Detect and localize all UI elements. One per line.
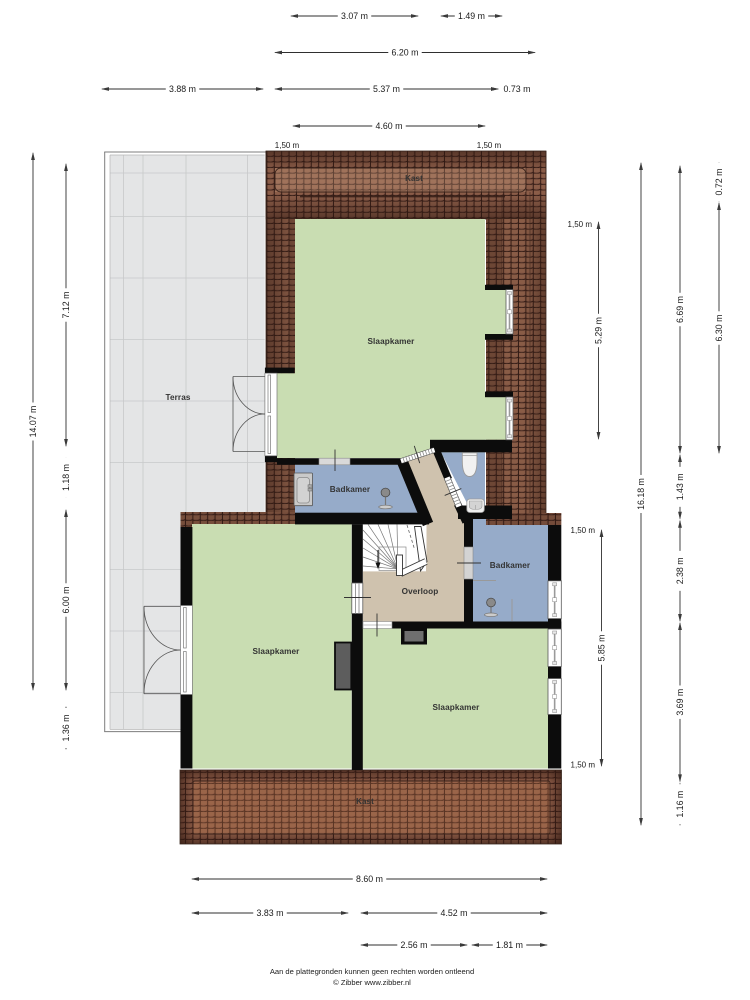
svg-text:Overloop: Overloop — [402, 587, 439, 596]
svg-text:3.88 m: 3.88 m — [169, 84, 196, 94]
svg-text:4.60 m: 4.60 m — [376, 121, 403, 131]
svg-text:6.20 m: 6.20 m — [392, 48, 419, 58]
svg-text:14.07 m: 14.07 m — [28, 406, 38, 438]
svg-text:4.52 m: 4.52 m — [441, 908, 468, 918]
svg-text:1,50 m: 1,50 m — [568, 220, 593, 229]
svg-text:Kast: Kast — [405, 174, 423, 183]
svg-text:Badkamer: Badkamer — [490, 561, 531, 570]
svg-text:1.36 m: 1.36 m — [61, 715, 71, 742]
svg-text:Aan de plattegronden kunnen ge: Aan de plattegronden kunnen geen rechten… — [270, 967, 474, 976]
svg-text:1.18 m: 1.18 m — [61, 464, 71, 491]
svg-text:Kast: Kast — [356, 797, 374, 806]
svg-text:6.30 m: 6.30 m — [714, 315, 724, 342]
svg-text:1,50 m: 1,50 m — [571, 761, 596, 770]
svg-text:Terras: Terras — [165, 393, 190, 402]
svg-text:1.49 m: 1.49 m — [458, 11, 485, 21]
svg-text:© Zibber www.zibber.nl: © Zibber www.zibber.nl — [333, 978, 411, 987]
svg-text:16.18 m: 16.18 m — [636, 478, 646, 510]
svg-text:3.69 m: 3.69 m — [675, 689, 685, 716]
svg-text:8.60 m: 8.60 m — [356, 874, 383, 884]
svg-text:1,50 m: 1,50 m — [275, 141, 300, 150]
svg-text:1.81 m: 1.81 m — [496, 940, 523, 950]
svg-text:1,50 m: 1,50 m — [571, 526, 596, 535]
svg-text:6.00 m: 6.00 m — [61, 587, 71, 614]
svg-text:3.07 m: 3.07 m — [341, 11, 368, 21]
svg-text:6.69 m: 6.69 m — [675, 296, 685, 323]
svg-text:0.72 m: 0.72 m — [714, 169, 724, 196]
svg-text:Badkamer: Badkamer — [330, 485, 371, 494]
svg-text:Slaapkamer: Slaapkamer — [368, 337, 416, 346]
svg-text:1.16 m: 1.16 m — [675, 791, 685, 818]
svg-text:2.56 m: 2.56 m — [401, 940, 428, 950]
svg-text:5.29 m: 5.29 m — [594, 317, 604, 344]
svg-text:1,50 m: 1,50 m — [477, 141, 502, 150]
svg-text:3.83 m: 3.83 m — [257, 908, 284, 918]
svg-text:7.12 m: 7.12 m — [61, 292, 71, 319]
svg-text:5.85 m: 5.85 m — [597, 635, 607, 662]
svg-text:Slaapkamer: Slaapkamer — [433, 703, 481, 712]
svg-text:1.43 m: 1.43 m — [675, 473, 685, 500]
svg-text:2.38 m: 2.38 m — [675, 557, 685, 584]
svg-text:0.73 m: 0.73 m — [504, 84, 531, 94]
svg-text:5.37 m: 5.37 m — [373, 84, 400, 94]
svg-text:Slaapkamer: Slaapkamer — [253, 647, 301, 656]
